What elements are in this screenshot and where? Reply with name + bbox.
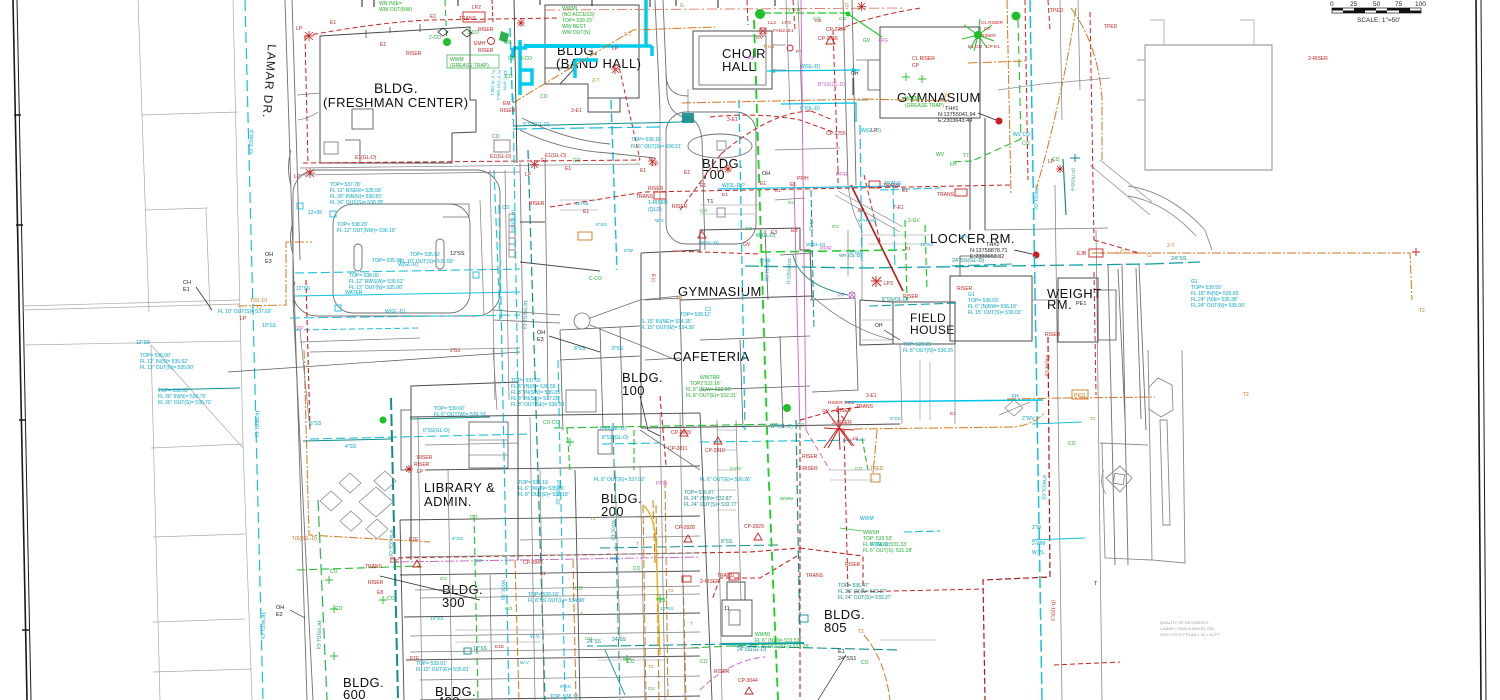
svg-text:W(OL-D): W(OL-D) bbox=[499, 580, 506, 601]
svg-text:E3: E3 bbox=[537, 337, 544, 343]
svg-text:2-GV: 2-GV bbox=[730, 466, 742, 472]
svg-text:TOP= 538.16': TOP= 538.16' bbox=[631, 137, 662, 143]
svg-text:LIBRARY &: LIBRARY & bbox=[424, 480, 495, 495]
svg-text:E1: E1 bbox=[565, 166, 571, 172]
svg-text:RISER: RISER bbox=[981, 33, 996, 39]
svg-text:ADMIN.: ADMIN. bbox=[424, 494, 472, 509]
svg-text:GV: GV bbox=[756, 35, 764, 41]
svg-text:24"SS1: 24"SS1 bbox=[838, 656, 856, 662]
svg-text:TRANS: TRANS bbox=[937, 192, 955, 198]
svg-text:E3: E3 bbox=[265, 259, 272, 265]
svg-text:CL RISER: CL RISER bbox=[981, 20, 1003, 26]
svg-text:4"SS: 4"SS bbox=[596, 222, 607, 228]
svg-text:BLDG.: BLDG. bbox=[374, 80, 418, 96]
svg-text:W(GL-D): W(GL-D) bbox=[806, 242, 826, 248]
svg-text:2-CO: 2-CO bbox=[429, 35, 441, 41]
svg-text:100: 100 bbox=[1415, 1, 1426, 8]
svg-text:TRANS: TRANS bbox=[459, 16, 477, 22]
svg-text:2-T: 2-T bbox=[1120, 248, 1127, 254]
svg-text:25: 25 bbox=[1350, 1, 1358, 8]
svg-text:T7: T7 bbox=[963, 153, 969, 159]
svg-text:GV: GV bbox=[863, 38, 871, 44]
svg-text:11: 11 bbox=[724, 606, 730, 612]
svg-text:T2: T2 bbox=[648, 664, 654, 670]
svg-text:PE1: PE1 bbox=[1076, 301, 1086, 307]
svg-text:FL 24" OUT(N)= 535.00': FL 24" OUT(N)= 535.00' bbox=[1191, 303, 1245, 309]
svg-text:LP: LP bbox=[871, 128, 878, 134]
svg-text:B"SS(GL-D): B"SS(GL-D) bbox=[818, 82, 845, 88]
svg-text:RISER: RISER bbox=[414, 462, 430, 468]
svg-text:E8: E8 bbox=[377, 590, 383, 596]
svg-text:WW OUT(N): WW OUT(N) bbox=[562, 30, 591, 36]
svg-text:CO CO: CO CO bbox=[543, 420, 560, 426]
svg-text:W(GL-D): W(GL-D) bbox=[800, 64, 820, 70]
svg-text:W.V.: W.V. bbox=[530, 634, 540, 640]
svg-text:E1: E1 bbox=[430, 14, 436, 20]
svg-text:E1: E1 bbox=[790, 182, 796, 188]
svg-text:RISER: RISER bbox=[478, 27, 494, 33]
svg-text:(D-10)SS: (D-10)SS bbox=[509, 210, 516, 232]
svg-text:Jal: Jal bbox=[852, 436, 858, 442]
svg-text:CO: CO bbox=[700, 208, 707, 214]
svg-text:RISER: RISER bbox=[478, 48, 494, 54]
svg-text:T(E)(GL-D): T(E)(GL-D) bbox=[292, 536, 317, 542]
svg-text:12+55: 12+55 bbox=[308, 210, 322, 216]
svg-text:LOCKER RM.: LOCKER RM. bbox=[930, 231, 1015, 246]
svg-text:GV: GV bbox=[743, 242, 751, 248]
svg-text:E1: E1 bbox=[684, 170, 690, 176]
svg-text:T1: T1 bbox=[707, 199, 713, 205]
svg-text:E1(GL-D): E1(GL-D) bbox=[490, 154, 512, 160]
svg-text:LP: LP bbox=[417, 469, 424, 475]
svg-text:RISER: RISER bbox=[417, 455, 433, 461]
svg-text:3-E1: 3-E1 bbox=[727, 117, 738, 123]
svg-text:CP-2755: CP-2755 bbox=[826, 131, 846, 137]
svg-text:CO: CO bbox=[573, 158, 581, 164]
svg-text:2"W: 2"W bbox=[1032, 525, 1042, 531]
svg-text:GV: GV bbox=[648, 686, 656, 692]
svg-text:CO: CO bbox=[1022, 141, 1030, 147]
svg-text:WYRAM: WYRAM bbox=[858, 218, 876, 224]
svg-text:6"SS(GL-D): 6"SS(GL-D) bbox=[423, 428, 450, 434]
svg-text:FL 15" OUT(S)= 536.03': FL 15" OUT(S)= 536.03' bbox=[968, 310, 1022, 316]
svg-text:T: T bbox=[580, 611, 583, 617]
svg-text:12"SS: 12"SS bbox=[136, 340, 151, 346]
svg-text:E1: E1 bbox=[640, 168, 646, 174]
svg-text:6"SS: 6"SS bbox=[560, 684, 571, 690]
svg-text:1"WW: 1"WW bbox=[788, 7, 801, 12]
svg-text:OH: OH bbox=[276, 605, 284, 611]
svg-text:E1E: E1E bbox=[390, 559, 400, 565]
svg-text:2-T: 2-T bbox=[1167, 243, 1175, 249]
svg-text:TRANS: TRANS bbox=[365, 564, 383, 570]
svg-text:SITE UTILITY PLAN 1 IN = 50 FT: SITE UTILITY PLAN 1 IN = 50 FT bbox=[1160, 632, 1220, 637]
svg-text:12"SS: 12"SS bbox=[473, 646, 488, 652]
svg-text:FL 10" OUT(S)= 537.69': FL 10" OUT(S)= 537.69' bbox=[218, 309, 272, 315]
svg-text:TPED: TPED bbox=[1104, 24, 1118, 30]
svg-text:EB: EB bbox=[791, 228, 798, 234]
svg-text:E1: E1 bbox=[902, 188, 908, 194]
svg-text:WWM: WWM bbox=[860, 516, 874, 522]
svg-text:CAFETERIA: CAFETERIA bbox=[673, 349, 750, 364]
svg-text:RISER: RISER bbox=[845, 562, 861, 568]
svg-text:CP-2829: CP-2829 bbox=[744, 524, 764, 530]
svg-text:E2: E2 bbox=[276, 612, 283, 618]
svg-text:TRANS: TRANS bbox=[636, 194, 654, 200]
svg-text:2-T: 2-T bbox=[624, 32, 632, 38]
svg-text:FL 24" OUT(S)= 532.77': FL 24" OUT(S)= 532.77' bbox=[684, 502, 738, 508]
svg-text:E1E: E1E bbox=[495, 644, 504, 650]
svg-text:W.V.: W.V. bbox=[960, 234, 970, 240]
svg-text:FL 6" OUT(SE)= 531.28': FL 6" OUT(SE)= 531.28' bbox=[755, 644, 809, 650]
svg-text:2-T: 2-T bbox=[944, 93, 952, 99]
svg-text:FL 6" OUT 536.0: FL 6" OUT 536.0 bbox=[496, 70, 502, 101]
svg-text:T2: T2 bbox=[1243, 392, 1249, 398]
svg-text:CO: CO bbox=[492, 134, 500, 140]
svg-text:RISER: RISER bbox=[672, 204, 688, 210]
svg-text:CO: CO bbox=[504, 40, 512, 46]
svg-text:TPED: TPED bbox=[870, 466, 884, 472]
svg-text:C-CO: C-CO bbox=[589, 276, 602, 282]
svg-text:E1: E1 bbox=[722, 192, 728, 198]
svg-text:E1 CU: E1 CU bbox=[968, 44, 983, 50]
svg-text:8"SS: 8"SS bbox=[850, 250, 861, 256]
svg-text:16"W(GL-D): 16"W(GL-D) bbox=[259, 612, 266, 640]
svg-text:PP: PP bbox=[748, 56, 755, 62]
svg-text:EM: EM bbox=[503, 101, 511, 107]
svg-text:(FRESHMAN CENTER): (FRESHMAN CENTER) bbox=[323, 95, 468, 110]
svg-text:LP: LP bbox=[296, 26, 303, 32]
svg-text:PP/R: PP/R bbox=[836, 172, 848, 178]
svg-text:24"SS: 24"SS bbox=[612, 637, 627, 643]
svg-text:RM.: RM. bbox=[1047, 297, 1072, 312]
svg-text:RISER: RISER bbox=[406, 51, 422, 57]
svg-text:FL 6" IN 536.1: FL 6" IN 536.1 bbox=[490, 70, 496, 96]
svg-text:RISER: RISER bbox=[802, 454, 818, 460]
svg-text:WWM: WWM bbox=[780, 496, 793, 502]
svg-text:8"SS: 8"SS bbox=[721, 539, 733, 545]
svg-text:CO: CO bbox=[700, 659, 708, 665]
svg-text:12"SS: 12"SS bbox=[430, 616, 443, 622]
svg-text:TPED: TPED bbox=[1050, 8, 1064, 14]
svg-text:FL 12" OUT(NW)= 536.19': FL 12" OUT(NW)= 536.19' bbox=[337, 228, 396, 234]
svg-text:CO: CO bbox=[813, 16, 820, 22]
svg-text:CO: CO bbox=[585, 636, 592, 642]
svg-text:E1E: E1E bbox=[410, 656, 420, 662]
svg-text:805: 805 bbox=[824, 620, 847, 635]
svg-text:WV CO: WV CO bbox=[1013, 132, 1030, 138]
svg-text:CP-2810: CP-2810 bbox=[705, 448, 725, 454]
svg-text:LP: LP bbox=[652, 162, 659, 168]
svg-text:FL 8" OUT(E)= 535.18': FL 8" OUT(E)= 535.18' bbox=[518, 492, 569, 498]
svg-text:GYMNASIUM: GYMNASIUM bbox=[678, 284, 762, 299]
svg-text:8"SS(OL-D): 8"SS(OL-D) bbox=[882, 297, 909, 303]
svg-text:3010SS(D-1): 3010SS(D-1) bbox=[786, 258, 792, 285]
svg-text:GV: GV bbox=[822, 408, 830, 414]
svg-text:(D-1)OL3: (D-1)OL3 bbox=[1049, 600, 1056, 621]
svg-text:TRANS: TRANS bbox=[806, 573, 824, 579]
svg-text:3-CO: 3-CO bbox=[520, 56, 532, 62]
svg-text:OH: OH bbox=[537, 330, 545, 336]
svg-text:3-E1: 3-E1 bbox=[866, 393, 877, 399]
svg-text:8"SS: 8"SS bbox=[760, 258, 771, 264]
svg-text:E1E: E1E bbox=[409, 537, 419, 543]
svg-text:12"SS: 12"SS bbox=[660, 606, 673, 612]
svg-text:1-RISER: 1-RISER bbox=[798, 466, 818, 472]
svg-text:8"W(GL-D): 8"W(GL-D) bbox=[1032, 185, 1039, 210]
svg-text:RISER: RISER bbox=[1045, 332, 1061, 338]
svg-text:6"SS: 6"SS bbox=[452, 536, 463, 542]
svg-text:PP/R: PP/R bbox=[656, 481, 668, 487]
svg-text:8"SS(GL-D): 8"SS(GL-D) bbox=[602, 435, 629, 441]
svg-text:10"SS: 10"SS bbox=[920, 242, 933, 248]
svg-text:50: 50 bbox=[1373, 1, 1381, 8]
svg-text:LP: LP bbox=[612, 46, 619, 52]
svg-text:E1(GL-D): E1(GL-D) bbox=[355, 155, 377, 161]
svg-text:(GREASE TRAP): (GREASE TRAP) bbox=[905, 103, 944, 109]
svg-text:E1(GL-D): E1(GL-D) bbox=[545, 153, 567, 159]
svg-text:LP: LP bbox=[240, 316, 247, 322]
svg-text:CP: CP bbox=[984, 26, 991, 32]
svg-text:8"W(GL-D): 8"W(GL-D) bbox=[247, 130, 254, 155]
svg-text:WWM): WWM) bbox=[905, 96, 921, 102]
svg-text:E1): E1) bbox=[650, 274, 656, 282]
svg-text:TRANS: TRANS bbox=[884, 181, 902, 187]
svg-text:600: 600 bbox=[343, 687, 366, 700]
svg-text:FL 8" OUT(SE)= 536.10: FL 8" OUT(SE)= 536.10 bbox=[511, 402, 564, 408]
svg-text:FL 6" OUT(W)= 536.10': FL 6" OUT(W)= 536.10' bbox=[434, 412, 486, 418]
svg-text:8"W: 8"W bbox=[624, 248, 633, 254]
svg-text:FL 8" OUT(E)= 537.02': FL 8" OUT(E)= 537.02' bbox=[594, 477, 645, 483]
svg-text:CO: CO bbox=[475, 558, 482, 564]
svg-text:T2: T2 bbox=[1146, 253, 1152, 259]
svg-text:FL 24" OUT(S)= 533.27': FL 24" OUT(S)= 533.27' bbox=[838, 595, 892, 601]
svg-text:E1: E1 bbox=[838, 649, 845, 655]
svg-text:CH: CH bbox=[183, 280, 191, 286]
svg-text:WATER: WATER bbox=[345, 290, 363, 296]
svg-text:GV: GV bbox=[788, 200, 796, 206]
svg-text:LP: LP bbox=[1048, 159, 1055, 165]
svg-text:CP-2755: CP-2755 bbox=[818, 36, 838, 42]
svg-text:8"W(GL-D): 8"W(GL-D) bbox=[1040, 475, 1047, 500]
svg-text:LP: LP bbox=[717, 168, 724, 174]
svg-text:E1: E1 bbox=[380, 42, 386, 48]
svg-text:OH: OH bbox=[762, 171, 770, 177]
svg-text:2-WM: 2-WM bbox=[1032, 541, 1045, 547]
svg-text:E1: E1 bbox=[775, 188, 781, 194]
svg-text:RISER: RISER bbox=[957, 286, 973, 292]
svg-text:LP: LP bbox=[294, 174, 301, 180]
svg-text:16"SS(GL-D): 16"SS(GL-D) bbox=[315, 620, 322, 650]
svg-text:T: T bbox=[636, 541, 639, 547]
svg-text:E1: E1 bbox=[950, 411, 956, 417]
svg-text:CP-3044: CP-3044 bbox=[738, 678, 758, 684]
svg-text:RISER: RISER bbox=[714, 669, 730, 675]
svg-text:E1: E1 bbox=[905, 246, 911, 252]
svg-text:M(GL-D): M(GL-D) bbox=[700, 240, 719, 246]
svg-text:E1(GL-D): E1(GL-D) bbox=[1043, 355, 1050, 377]
svg-text:W?(GL-D): W?(GL-D) bbox=[770, 424, 793, 430]
svg-text:OH: OH bbox=[851, 71, 859, 77]
svg-text:8"SS(GL-D): 8"SS(GL-D) bbox=[387, 530, 394, 557]
svg-text:PP/H: PP/H bbox=[797, 176, 809, 182]
svg-text:CP: CP bbox=[912, 63, 920, 69]
svg-text:12+55: 12+55 bbox=[575, 201, 589, 207]
svg-text:CO: CO bbox=[745, 226, 752, 232]
svg-text:FL 8" OUT(N)= 536.25: FL 8" OUT(N)= 536.25 bbox=[903, 348, 953, 354]
svg-text:OH: OH bbox=[265, 252, 273, 258]
svg-text:8"E5(GL-D): 8"E5(GL-D) bbox=[600, 426, 626, 432]
svg-text:FL 15" OUT(W)= 534.30': FL 15" OUT(W)= 534.30' bbox=[640, 325, 695, 331]
svg-text:E1: E1 bbox=[183, 287, 190, 293]
svg-text:FL 36" OUT(S)= 530.78': FL 36" OUT(S)= 530.78' bbox=[330, 200, 384, 206]
svg-text:CO: CO bbox=[855, 466, 862, 472]
svg-text:EJB: EJB bbox=[1077, 251, 1087, 257]
svg-text:24"SS: 24"SS bbox=[1171, 256, 1187, 262]
svg-text:2-RISER: 2-RISER bbox=[1308, 56, 1328, 62]
svg-text:W(GL-D): W(GL-D) bbox=[870, 542, 890, 548]
svg-text:E1: E1 bbox=[540, 571, 546, 577]
svg-text:E1: E1 bbox=[330, 20, 336, 26]
svg-text:400: 400 bbox=[437, 694, 460, 700]
svg-text:CO: CO bbox=[540, 94, 548, 100]
svg-text:T2: T2 bbox=[668, 588, 674, 594]
svg-text:200: 200 bbox=[601, 504, 624, 519]
svg-text:PP: PP bbox=[297, 326, 304, 332]
svg-text:12'SS: 12'SS bbox=[450, 251, 465, 257]
svg-text:FL 12" OUT(N)= 535.80': FL 12" OUT(N)= 535.80' bbox=[140, 365, 194, 371]
svg-text:RISER: RISER bbox=[529, 201, 545, 207]
svg-text:(QLD): (QLD) bbox=[648, 207, 662, 213]
svg-text:WV: WV bbox=[936, 152, 945, 158]
svg-text:M(GL-D): M(GL-D) bbox=[756, 233, 776, 239]
svg-text:CP E1: CP E1 bbox=[986, 44, 1000, 50]
svg-text:RISER: RISER bbox=[500, 108, 516, 114]
svg-text:CO: CO bbox=[508, 56, 516, 62]
svg-text:W(OL-D): W(OL-D) bbox=[609, 520, 616, 541]
svg-text:6"SS: 6"SS bbox=[890, 416, 901, 422]
svg-text:FL 8"SS OUT(L)= 534.98': FL 8"SS OUT(L)= 534.98' bbox=[528, 598, 585, 604]
svg-text:RISER 3-E1: RISER 3-E1 bbox=[828, 400, 854, 406]
svg-text:CO: CO bbox=[330, 569, 338, 575]
svg-text:FL 36" OUT(S)= 530.73': FL 36" OUT(S)= 530.73' bbox=[158, 400, 212, 406]
svg-text:RISER: RISER bbox=[836, 408, 852, 414]
svg-text:T6: T6 bbox=[676, 296, 682, 302]
svg-text:TOP= 535.90: TOP= 535.90 bbox=[372, 258, 402, 264]
svg-text:E:2303643.49: E:2303643.49 bbox=[938, 118, 972, 124]
svg-text:FL 12" OUT(E)= 535.81': FL 12" OUT(E)= 535.81' bbox=[416, 667, 470, 673]
svg-text:W(OL-D)?: W(OL-D)? bbox=[722, 183, 745, 189]
svg-text:4"SS: 4"SS bbox=[345, 444, 357, 450]
svg-text:T2: T2 bbox=[858, 629, 864, 635]
svg-text:T2: T2 bbox=[590, 516, 596, 522]
svg-text:FL 6" OUT(S): 531.28': FL 6" OUT(S): 531.28' bbox=[863, 548, 912, 554]
svg-text:EMH: EMH bbox=[474, 41, 486, 47]
svg-text:CP-2842: CP-2842 bbox=[523, 560, 543, 566]
svg-text:12"SS: 12"SS bbox=[296, 286, 311, 292]
svg-text:E1: E1 bbox=[700, 183, 706, 189]
svg-text:T: T bbox=[690, 621, 693, 627]
svg-text:6"SS: 6"SS bbox=[310, 421, 322, 427]
svg-text:GV: GV bbox=[440, 576, 448, 582]
svg-text:CL RISER: CL RISER bbox=[912, 56, 935, 62]
svg-text:CO: CO bbox=[839, 16, 846, 22]
svg-text:W.V.L: W.V.L bbox=[1032, 550, 1045, 556]
svg-text:SS-S1: SS-S1 bbox=[809, 218, 814, 232]
svg-text:3-E1: 3-E1 bbox=[571, 108, 582, 114]
svg-text:TOP= 535.92: TOP= 535.92 bbox=[410, 252, 440, 258]
svg-text:16"W(GL-D): 16"W(GL-D) bbox=[253, 410, 260, 438]
svg-text:TOP: 538.13: TOP: 538.13 bbox=[550, 694, 578, 700]
svg-text:8'SS: 8'SS bbox=[610, 556, 620, 562]
svg-text:RISER: RISER bbox=[368, 580, 384, 586]
svg-text:CO: CO bbox=[505, 606, 512, 612]
svg-text:LP: LP bbox=[525, 172, 532, 178]
svg-text:T2: T2 bbox=[1090, 416, 1096, 422]
svg-text:OH: OH bbox=[875, 323, 883, 329]
svg-text:PED: PED bbox=[1074, 393, 1085, 399]
svg-text:10"SS: 10"SS bbox=[262, 323, 277, 329]
svg-text:CO: CO bbox=[387, 596, 395, 602]
svg-text:CO: CO bbox=[470, 515, 478, 521]
svg-text:3/4"C WTR: 3/4"C WTR bbox=[502, 70, 508, 90]
svg-text:2-RISER: 2-RISER bbox=[700, 579, 720, 585]
svg-text:CO: CO bbox=[797, 423, 805, 429]
svg-text:WW OUT(NW): WW OUT(NW) bbox=[379, 7, 412, 13]
svg-text:CO: CO bbox=[633, 566, 641, 572]
svg-text:W.V.: W.V. bbox=[655, 218, 665, 224]
svg-text:T(0L-D): T(0L-D) bbox=[250, 298, 268, 304]
svg-text:CP-2754: CP-2754 bbox=[826, 27, 846, 33]
svg-text:TRANS: TRANS bbox=[856, 404, 874, 410]
svg-text:T2: T2 bbox=[1419, 308, 1425, 314]
svg-text:24"SS(GL-D): 24"SS(GL-D) bbox=[952, 258, 984, 264]
svg-text:LP2: LP2 bbox=[472, 5, 481, 11]
svg-text:RISER: RISER bbox=[648, 186, 664, 192]
svg-text:G: G bbox=[845, 3, 849, 9]
svg-text:C1: C1 bbox=[705, 307, 712, 313]
svg-text:LL2: LL2 bbox=[768, 20, 776, 26]
svg-text:CO: CO bbox=[575, 586, 583, 592]
svg-text:FH: FH bbox=[950, 162, 957, 168]
svg-text:2-GV: 2-GV bbox=[908, 218, 920, 224]
svg-text:FL 8" OUT(E)= 532.31': FL 8" OUT(E)= 532.31' bbox=[686, 393, 737, 399]
svg-text:2-RISER: 2-RISER bbox=[832, 420, 852, 426]
svg-text:CP-2828: CP-2828 bbox=[675, 525, 695, 531]
svg-text:7-E1: 7-E1 bbox=[893, 205, 904, 211]
svg-text:(D-70)SS-9: (D-70)SS-9 bbox=[1070, 168, 1076, 191]
svg-text:GV: GV bbox=[832, 224, 840, 230]
svg-text:E1: E1 bbox=[760, 181, 766, 187]
svg-text:1-RISER: 1-RISER bbox=[648, 200, 668, 206]
svg-text:W.V.: W.V. bbox=[520, 660, 530, 666]
svg-text:SCALE: 1"=50': SCALE: 1"=50' bbox=[1357, 17, 1400, 24]
svg-text:CO: CO bbox=[1068, 441, 1076, 447]
svg-text:0: 0 bbox=[1330, 1, 1334, 8]
svg-text:TRANS: TRANS bbox=[717, 573, 735, 579]
svg-text:2-T: 2-T bbox=[592, 78, 600, 84]
svg-text:LAMAR CONSOLIDATED ISD: LAMAR CONSOLIDATED ISD bbox=[1160, 626, 1214, 631]
svg-text:HOUSE: HOUSE bbox=[910, 323, 955, 337]
svg-text:75: 75 bbox=[1395, 1, 1403, 8]
svg-text:QUALITY OF RECORDS S: QUALITY OF RECORDS S bbox=[1160, 620, 1209, 625]
svg-text:W(GL-D): W(GL-D) bbox=[385, 309, 405, 315]
svg-text:LP3: LP3 bbox=[884, 281, 893, 287]
svg-text:G: G bbox=[680, 3, 684, 9]
svg-text:8"SS: 8"SS bbox=[612, 346, 624, 352]
svg-text:FAN2=E1: FAN2=E1 bbox=[773, 28, 794, 34]
svg-text:FL 6" OUT(S)= 536.51': FL 6" OUT(S)= 536.51' bbox=[631, 144, 682, 150]
